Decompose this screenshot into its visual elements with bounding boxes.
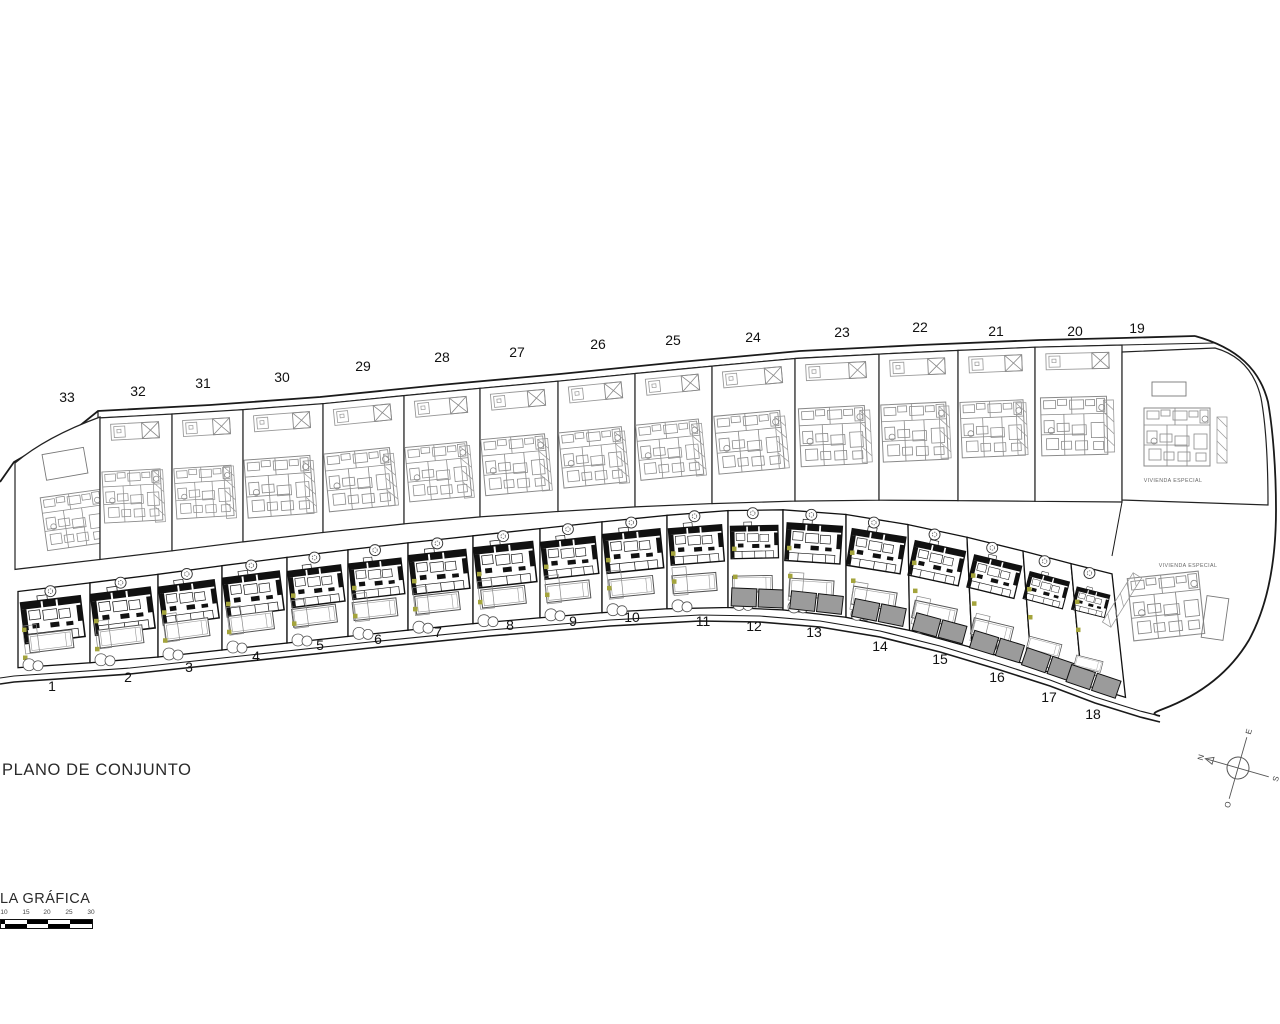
tree-icon [689, 511, 700, 522]
plot-number-19: 19 [1129, 320, 1145, 336]
tree-icon [562, 524, 573, 535]
tree-icon [1039, 556, 1050, 567]
plot-number-24: 24 [745, 329, 761, 345]
plot-number-32: 32 [130, 383, 146, 399]
tree-icon [181, 569, 192, 580]
tree-icon [929, 529, 940, 540]
tree-icon [309, 552, 320, 563]
tree-icon [370, 545, 381, 556]
shrub-marker [733, 575, 738, 580]
plot-7: 7 [408, 536, 473, 640]
tree-icon [806, 509, 817, 520]
plot-number-5: 5 [316, 637, 324, 653]
plot-number-6: 6 [374, 631, 382, 647]
plot-number-30: 30 [274, 369, 290, 385]
plot-31: 31 [172, 375, 243, 551]
plot-21: 21 [958, 323, 1035, 501]
boundary-segment [1112, 502, 1122, 556]
scale-bar-segment [70, 924, 92, 928]
plot-29: 29 [323, 358, 404, 533]
shrub-marker [292, 621, 297, 626]
garage-strip [183, 418, 231, 437]
shrub-marker [413, 607, 418, 612]
garage-strip [111, 422, 160, 441]
scale-bar-row-2 [1, 924, 92, 928]
plot-number-31: 31 [195, 375, 211, 391]
plot-number-4: 4 [252, 648, 260, 664]
compass-north-label: N [1196, 753, 1206, 761]
shrub-marker [972, 601, 977, 606]
plot-boundary [15, 417, 100, 569]
shrub-marker [477, 572, 482, 577]
plot-number-13: 13 [806, 624, 822, 640]
tree-icon [747, 508, 758, 519]
plot-4: 4 [222, 557, 287, 664]
shrub-marker [607, 586, 612, 591]
plot-number-15: 15 [932, 651, 948, 667]
shrub-marker [913, 589, 918, 594]
shrub-marker [971, 573, 976, 578]
plot-33: 33 [15, 389, 108, 569]
tree-icon [987, 542, 998, 553]
shrub-marker [163, 638, 168, 643]
garage-strip [1046, 352, 1109, 370]
tree-icon [115, 577, 126, 588]
plot-6: 6 [348, 543, 408, 647]
shrub-marker [226, 602, 231, 607]
tree-icon [868, 517, 879, 528]
plot-9: 9 [540, 522, 602, 629]
tree-icon [45, 586, 56, 597]
plot-2: 2 [90, 574, 158, 685]
shrub-marker [412, 579, 417, 584]
scale-bar-segment [5, 924, 27, 928]
shrub-marker [672, 579, 677, 584]
plot-11: 11 [667, 511, 728, 629]
plot-number-14: 14 [872, 638, 888, 654]
plot-number-29: 29 [355, 358, 371, 374]
shrub-marker [544, 565, 549, 570]
plot-20: 20 [1035, 323, 1122, 502]
plot-number-20: 20 [1067, 323, 1083, 339]
plot-25: 25 [635, 332, 712, 507]
plot-26: 26 [558, 336, 635, 512]
plot-27: 27 [480, 344, 558, 517]
special-area-label: VIVIENDA ESPECIAL [1159, 563, 1218, 569]
pool [672, 572, 717, 593]
shrub-marker [1076, 628, 1081, 633]
plot-number-23: 23 [834, 324, 850, 340]
plot-number-16: 16 [989, 669, 1005, 685]
shrub-marker [1028, 615, 1033, 620]
shrub-marker [94, 619, 99, 624]
shrub-marker [1027, 587, 1032, 592]
scale-bar-label: LA GRÁFICA [0, 891, 120, 907]
compass-rose: N E S O [1192, 722, 1280, 814]
pool-rectangle [1201, 596, 1229, 641]
scale-bar-ticks: 1015202530 [0, 909, 120, 918]
plot-30: 30 [243, 369, 323, 542]
plot-number-12: 12 [746, 618, 762, 634]
scale-tick-20: 20 [43, 909, 50, 916]
site-plan-sheet: 3332313029282726252423222120VIVIENDA ESP… [0, 0, 1280, 1024]
shrub-marker [227, 630, 232, 635]
plot-number-11: 11 [696, 613, 711, 629]
plot-19: VIVIENDA ESPECIAL19 [1122, 320, 1268, 505]
plot-number-28: 28 [434, 349, 450, 365]
garage-strip [969, 355, 1023, 373]
garage-strip [890, 358, 946, 376]
plot-number-18: 18 [1085, 706, 1101, 722]
plot-number-22: 22 [912, 319, 928, 335]
scale-bar-segment [48, 924, 70, 928]
scale-tick-25: 25 [65, 909, 72, 916]
scale-bar-segment [27, 924, 48, 928]
shrub-marker [291, 593, 296, 598]
plot-number-21: 21 [988, 323, 1004, 339]
pool [609, 575, 655, 597]
plot-8: 8 [473, 529, 540, 633]
drawing-title: PLANO DE CONJUNTO [2, 761, 192, 780]
shrub-marker [912, 561, 917, 566]
shrub-marker [851, 578, 856, 583]
shrub-marker [353, 614, 358, 619]
compass-west-label: O [1223, 800, 1233, 808]
shrub-marker [162, 610, 167, 615]
plot-number-25: 25 [665, 332, 681, 348]
plot-number-33: 33 [59, 389, 75, 405]
shrub-marker [671, 551, 676, 556]
shrub-marker [545, 593, 550, 598]
plot-number-2: 2 [124, 669, 132, 685]
shrub-marker [850, 550, 855, 555]
plot-number-7: 7 [434, 624, 442, 640]
plot-number-8: 8 [506, 617, 514, 633]
tree-icon [432, 538, 443, 549]
plot-5: 5 [287, 550, 348, 653]
plot-28: 28 [404, 349, 480, 524]
plot-number-17: 17 [1041, 689, 1057, 705]
plot-number-10: 10 [624, 609, 640, 625]
garage-strip [806, 362, 867, 381]
shrub-marker [22, 628, 27, 633]
shrub-marker [606, 558, 611, 563]
shrub-marker [352, 586, 357, 591]
scale-bar: LA GRÁFICA 1015202530 [0, 891, 120, 929]
site-plan-drawing: 3332313029282726252423222120VIVIENDA ESP… [0, 0, 1280, 1024]
shrub-marker [732, 547, 737, 552]
compass-east-label: E [1244, 728, 1254, 736]
shrub-marker [1075, 600, 1080, 605]
scale-bar-graphic [0, 919, 93, 929]
special-area-label: VIVIENDA ESPECIAL [1144, 478, 1203, 484]
scale-tick-10: 10 [0, 909, 7, 916]
plot-number-26: 26 [590, 336, 606, 352]
scale-tick-30: 30 [87, 909, 94, 916]
shrub-marker [787, 546, 792, 551]
scale-tick-15: 15 [22, 909, 29, 916]
villa-floor-plan-light [1127, 571, 1204, 641]
tree-icon [498, 531, 509, 542]
plot-number-27: 27 [509, 344, 525, 360]
plot-10: 10 [602, 515, 667, 625]
plot-number-3: 3 [185, 659, 193, 675]
tree-icon [626, 517, 637, 528]
plot-number-1: 1 [48, 678, 56, 694]
compass-eo-axis [1229, 737, 1247, 799]
shrub-marker [788, 574, 793, 579]
shrub-marker [95, 647, 100, 652]
plot-number-9: 9 [569, 613, 577, 629]
special-area-lower: VIVIENDA ESPECIAL [1102, 563, 1228, 641]
shrub-marker [478, 600, 483, 605]
compass-south-label: S [1271, 775, 1280, 783]
tree-icon [246, 560, 257, 571]
tree-icon [1084, 568, 1095, 579]
